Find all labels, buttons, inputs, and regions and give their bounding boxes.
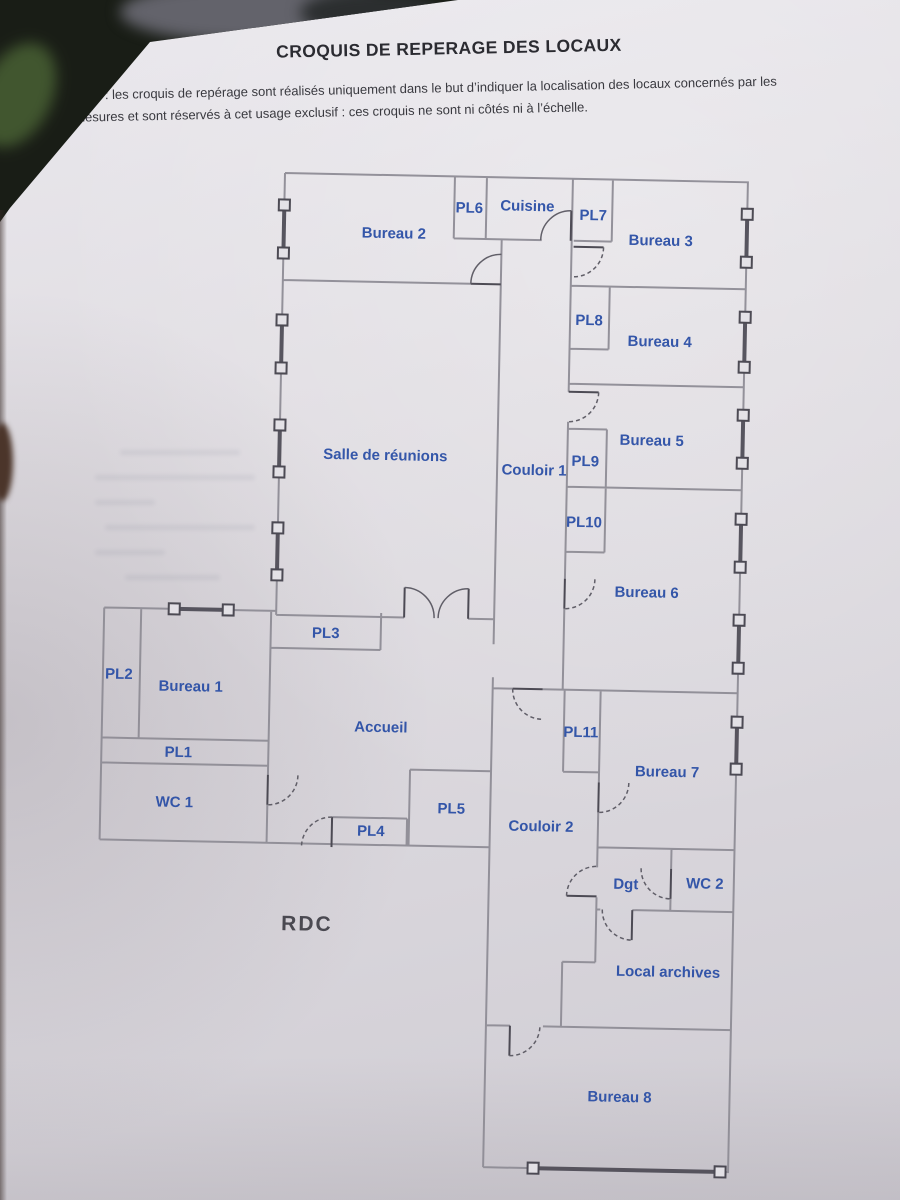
room-label-bureau-8: Bureau 8 [587,1088,652,1106]
door-arc-pl4 [301,816,332,847]
room-label-pl5: PL5 [437,800,465,818]
nota-line1: : les croquis de repérage sont réalisés … [101,74,777,103]
door-arc-dgt [567,866,598,897]
nota-paragraph: Nota : les croquis de repérage sont réal… [0,68,900,130]
room-label-accueil: Accueil [354,719,408,737]
floor-plan-drawing: Bureau 2 PL6 Cuisine PL7 Bureau 3 PL8 Bu… [75,164,780,1193]
room-label-pl9: PL9 [571,453,599,471]
room-label-wc-2: WC 2 [686,875,724,893]
door-arc-bureau2 [471,254,502,285]
room-label-pl8: PL8 [575,312,603,330]
door-arc-bureau3 [573,247,604,278]
paper-edge-shadow [0,210,7,1200]
door-arc-archives [602,910,633,941]
nota-line2: mesures et sont réservés à cet usage exc… [74,99,588,124]
room-label-couloir-2: Couloir 2 [508,818,573,836]
room-label-pl11: PL11 [563,724,598,742]
room-label-pl7: PL7 [579,207,607,225]
room-label-bureau-3: Bureau 3 [628,232,693,250]
room-labels: Bureau 2 PL6 Cuisine PL7 Bureau 3 PL8 Bu… [97,190,738,1108]
door-arc-bureau5 [568,392,599,423]
room-label-bureau-7: Bureau 7 [635,763,700,781]
plant-leaf [0,30,72,159]
door-arc-bureau8 [509,1026,540,1057]
room-label-dgt: Dgt [613,876,638,893]
room-label-bureau-4: Bureau 4 [627,333,692,351]
door-arc-bureau6 [564,579,595,610]
room-label-bureau-1: Bureau 1 [158,678,223,696]
room-label-pl3: PL3 [312,625,340,643]
room-label-pl6: PL6 [455,199,483,217]
room-label-local-archives: Local archives [616,963,721,982]
door-arc-couloir2 [512,689,543,720]
room-label-couloir-1: Couloir 1 [501,461,566,479]
room-label-wc-1: WC 1 [155,794,193,812]
room-label-cuisine: Cuisine [500,197,555,215]
room-label-bureau-2: Bureau 2 [362,225,427,243]
room-label-pl4: PL4 [357,823,386,841]
room-label-bureau-6: Bureau 6 [614,584,679,602]
floor-label-rdc: RDC [281,912,333,936]
floor-plan: Bureau 2 PL6 Cuisine PL7 Bureau 3 PL8 Bu… [75,164,780,1193]
door-arc-wc2 [641,868,672,899]
door-arc-wc1 [267,775,298,806]
room-label-pl10: PL10 [566,514,602,532]
photographed-floor-plan-page: { "header": { "title": "CROQUIS DE REPER… [0,0,900,1200]
walls [93,170,748,1173]
door-arc-salle-right [438,588,469,619]
door-arc-bureau7 [598,782,629,813]
room-label-pl1: PL1 [164,744,192,762]
room-label-pl2: PL2 [105,665,133,683]
door-arc-salle-left [404,587,435,618]
blurred-dark-object [300,0,440,35]
room-label-salle-de-reunions: Salle de réunions [323,446,448,465]
thumb-holding-paper [0,423,13,501]
room-label-bureau-5: Bureau 5 [619,432,684,450]
